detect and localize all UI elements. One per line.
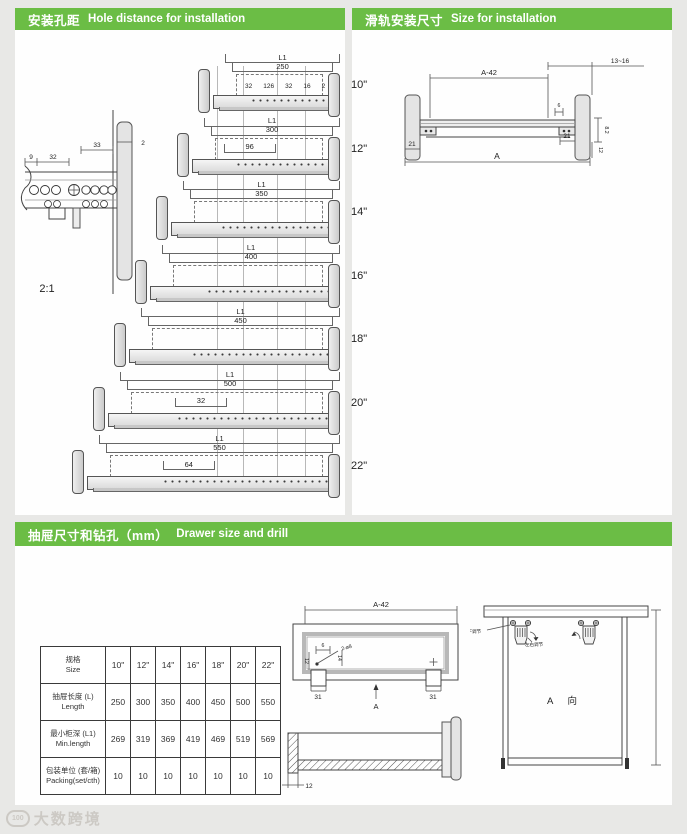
dimension-value: L1 (163, 244, 339, 252)
drawer-section-drawing: 12 (280, 714, 475, 802)
section-header-hole-distance: 安装孔距 Hole distance for installation (15, 8, 345, 30)
slide-row: L125010"3212632162 (15, 54, 360, 118)
dim-extra: 64 (163, 461, 215, 470)
row-header-en: Packing(set/cth) (41, 776, 105, 786)
spec-cell: 269 (106, 721, 131, 758)
spec-cell: 350 (156, 684, 181, 721)
dim-v2: 14 (336, 655, 342, 661)
dim-31-left: 31 (314, 694, 322, 701)
slide-row: L140016" (15, 245, 360, 309)
spec-cell: 14" (156, 647, 181, 684)
side-board-left (114, 323, 126, 367)
spec-cell: 12" (131, 647, 156, 684)
dimension-value: 16 (303, 84, 310, 91)
lower-rail (177, 234, 340, 238)
side-board-left (198, 69, 210, 113)
adjust-label-leftright: 左右调节 (525, 641, 543, 648)
spec-cell: 550 (256, 684, 281, 721)
spec-table-row: 包装单位 (套/箱)Packing(set/cth)10101010101010 (41, 758, 281, 795)
dim-side-v2: 12 (597, 147, 603, 153)
dimension-value: 250 (233, 63, 332, 71)
spec-cell: 519 (231, 721, 256, 758)
dim-a42: A-42 (481, 68, 497, 77)
row-header: 抽屉长度 (L)Length (41, 684, 106, 721)
spec-cell: 18" (206, 647, 231, 684)
screw-holes (176, 416, 328, 422)
lower-rail (156, 298, 340, 302)
dimension-value: 400 (170, 253, 332, 261)
drawer-outline (152, 328, 323, 350)
adjust-label-updown: 上下调节 (470, 628, 481, 635)
install-dimensions: A-42 13~16 6 A 21 21 (405, 58, 644, 166)
dimension-value: L1 (100, 435, 339, 443)
dim-21-left: 21 (408, 141, 416, 148)
spec-table-row: 抽屉长度 (L)Length250300350400450500550 (41, 684, 281, 721)
dim-extra: 32 (175, 398, 227, 407)
screw-holes (250, 98, 331, 104)
dim-length: 450 (148, 317, 333, 326)
section-header-drawer-drill: 抽屉尺寸和钻孔（mm） Drawer size and drill (15, 522, 672, 546)
dim-length: 500 (127, 381, 333, 390)
row-header-en: Size (41, 665, 105, 675)
view-a-title: A 向 (547, 695, 583, 707)
slide-member (420, 120, 575, 137)
spec-cell: 22" (256, 647, 281, 684)
dimension-value: L1 (121, 371, 339, 379)
screw-holes (191, 352, 329, 358)
spec-cell: 500 (231, 684, 256, 721)
spec-cell: 10 (156, 758, 181, 795)
dimension-value: 32 (285, 84, 292, 91)
side-board-left (72, 450, 84, 494)
spec-cell: 469 (206, 721, 231, 758)
dimension-value: 300 (212, 126, 332, 134)
drawer-outline (110, 455, 323, 477)
watermark: 100 大数跨境 (6, 808, 102, 829)
spec-cell: 20" (231, 647, 256, 684)
drawer-drill-area: 规格Size10"12"14"16"18"20"22"抽屉长度 (L)Lengt… (15, 546, 672, 805)
dim-length: 550 (106, 444, 333, 453)
row-header-en: Length (41, 702, 105, 712)
dimension-value: 450 (149, 317, 332, 325)
spec-cell: 450 (206, 684, 231, 721)
watermark-text: 大数跨境 (34, 808, 102, 829)
spec-cell: 10 (206, 758, 231, 795)
slide-row: L150020"32 (15, 372, 360, 436)
spec-cell: 419 (181, 721, 206, 758)
slide-size-label: 14" (351, 206, 367, 218)
extra-dims: 3212632162 (245, 84, 325, 91)
dimension-value: 350 (191, 190, 332, 198)
spec-table: 规格Size10"12"14"16"18"20"22"抽屉长度 (L)Lengt… (40, 646, 281, 795)
slide-row: L130012"96 (15, 118, 360, 182)
side-board-left (156, 196, 168, 240)
install-cross-section-drawing: A-42 13~16 6 A 21 21 (352, 50, 672, 260)
slide-row: L145018" (15, 308, 360, 372)
spec-table-row: 规格Size10"12"14"16"18"20"22" (41, 647, 281, 684)
panel-drawer-drill: 抽屉尺寸和钻孔（mm） Drawer size and drill 规格Size… (15, 522, 672, 805)
spec-cell: 369 (156, 721, 181, 758)
hole-distance-drawing-area: 9 32 33 2 2:1 L125010"3212632162L130012"… (15, 30, 345, 515)
spec-cell: 300 (131, 684, 156, 721)
slide-size-label: 22" (351, 460, 367, 472)
dim-6: 6 (322, 643, 325, 649)
dim-extra: 96 (224, 144, 276, 153)
spec-cell: 10 (256, 758, 281, 795)
side-board-left (135, 260, 147, 304)
dim-21-right: 21 (563, 133, 571, 140)
dim-length: 400 (169, 254, 333, 263)
side-board-right (328, 73, 340, 117)
side-board-right (328, 391, 340, 435)
slide-size-label: 10" (351, 79, 367, 91)
mounting-clip-right (572, 620, 599, 644)
dim-13-16: 13~16 (611, 58, 630, 65)
row-header: 包装单位 (套/箱)Packing(set/cth) (41, 758, 106, 795)
side-board-left (177, 133, 189, 177)
cabinet-view-a-outline (484, 606, 661, 769)
lower-rail (219, 107, 340, 111)
lower-rail (135, 361, 340, 365)
row-header: 最小柜深 (L1)Min.length (41, 721, 106, 758)
spec-cell: 250 (106, 684, 131, 721)
spec-cell: 16" (181, 647, 206, 684)
drawer-section-outline (288, 717, 461, 780)
dimension-value: 126 (263, 84, 274, 91)
spec-cell: 400 (181, 684, 206, 721)
screw-holes (235, 162, 330, 168)
side-board-left (93, 387, 105, 431)
watermark-logo: 100 (6, 810, 30, 827)
hole-callout: 2-ø8 (341, 644, 353, 653)
slide-size-label: 18" (351, 333, 367, 345)
spec-cell: 10" (106, 647, 131, 684)
panel-size-install: 滑轨安装尺寸 Size for installation (352, 8, 672, 515)
row-header: 规格Size (41, 647, 106, 684)
spec-cell: 10 (106, 758, 131, 795)
dimension-value: 96 (225, 143, 275, 151)
screw-holes (162, 479, 329, 485)
row-header-en: Min.length (41, 739, 105, 749)
spec-cell: 10 (231, 758, 256, 795)
slide-size-label: 12" (351, 143, 367, 155)
slides-stack: L125010"3212632162L130012"96L135014"L140… (15, 30, 345, 515)
dimension-value: 2 (322, 84, 326, 91)
lower-rail (114, 425, 340, 429)
plan-dimensions: A-42 6 2-ø8 31 31 12 14 (303, 600, 457, 711)
drawer-outline (173, 265, 323, 287)
drawer-plan-drawing: A-42 6 2-ø8 31 31 12 14 (280, 592, 475, 714)
view-a-drawing: 上下调节 左右调节 A 向 (470, 592, 672, 800)
drawer-plan-outline (293, 624, 458, 686)
lower-rail (198, 171, 340, 175)
section-header-size-install: 滑轨安装尺寸 Size for installation (352, 8, 672, 30)
dimension-value: L1 (205, 117, 339, 125)
size-install-drawing-area: A-42 13~16 6 A 21 21 (352, 30, 672, 515)
slide-size-label: 16" (351, 270, 367, 282)
dim-length: 250 (232, 63, 333, 72)
catalog-page: 安装孔距 Hole distance for installation (0, 0, 687, 834)
screw-holes (206, 289, 330, 295)
side-board-right (328, 200, 340, 244)
section-title-en: Hole distance for installation (88, 13, 245, 25)
row-header-zh: 抽屉长度 (L) (41, 692, 105, 702)
row-header-zh: 最小柜深 (L1) (41, 729, 105, 739)
slide-row: L135014" (15, 181, 360, 245)
dimension-value: L1 (226, 54, 339, 62)
panel-hole-distance: 安装孔距 Hole distance for installation (15, 8, 345, 515)
dim-a: A (494, 151, 500, 161)
dim-side-v1: 8.2 (603, 126, 609, 133)
dim-a42: A-42 (373, 600, 389, 609)
spec-cell: 10 (131, 758, 156, 795)
dimension-value: 500 (128, 380, 332, 388)
lower-rail (93, 488, 340, 492)
dimension-value: L1 (142, 308, 339, 316)
screw-holes (220, 225, 329, 231)
spec-cell: 319 (131, 721, 156, 758)
dimension-value: 32 (245, 84, 252, 91)
dim-length: 300 (211, 127, 333, 136)
dim-v1: 12 (303, 658, 309, 664)
spec-table-row: 最小柜深 (L1)Min.length269319369419469519569 (41, 721, 281, 758)
side-board-right (328, 327, 340, 371)
dimension-value: L1 (184, 181, 339, 189)
dim-12: 12 (305, 783, 313, 790)
side-board-right (328, 264, 340, 308)
dim-6: 6 (558, 103, 561, 109)
dimension-value: 32 (176, 397, 226, 405)
dimension-value: 550 (107, 444, 332, 452)
row-header-zh: 规格 (41, 655, 105, 665)
side-board-right (328, 137, 340, 181)
section-title-en: Size for installation (451, 13, 556, 25)
mounting-clip-left (510, 620, 538, 644)
side-board-right (328, 454, 340, 498)
section-title-en: Drawer size and drill (176, 528, 288, 540)
drawer-outline (131, 392, 323, 414)
view-direction-label: A (373, 702, 378, 711)
row-header-zh: 包装单位 (套/箱) (41, 766, 105, 776)
section-title-zh: 抽屉尺寸和钻孔（mm） (28, 525, 168, 544)
slide-size-label: 20" (351, 397, 367, 409)
slide-row: L155022"64 (15, 435, 360, 499)
section-title-zh: 安装孔距 (28, 10, 80, 29)
section-title-zh: 滑轨安装尺寸 (365, 10, 443, 29)
dim-length: 350 (190, 190, 333, 199)
dim-31-right: 31 (429, 694, 437, 701)
spec-cell: 10 (181, 758, 206, 795)
dimension-value: 64 (164, 461, 214, 469)
spec-cell: 569 (256, 721, 281, 758)
drawer-outline (194, 201, 323, 223)
